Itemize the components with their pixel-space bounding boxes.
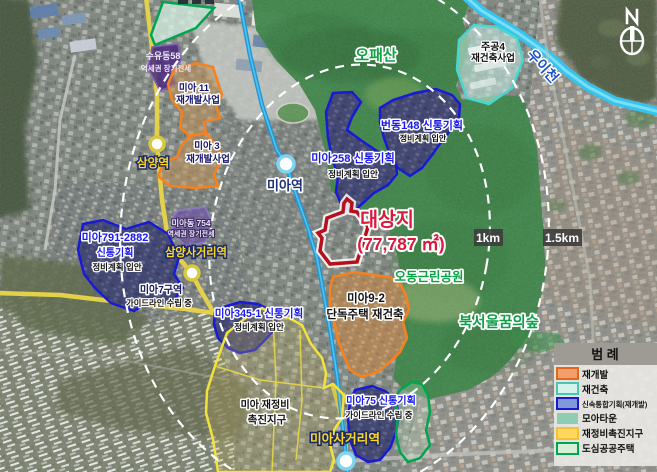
svg-text:재개발: 재개발 (582, 369, 608, 381)
svg-text:미아345-1 신통기획: 미아345-1 신통기획 (215, 307, 304, 320)
svg-text:모아타운: 모아타운 (582, 413, 617, 425)
svg-text:가이드라인 수립 중: 가이드라인 수립 중 (126, 298, 192, 308)
svg-text:재정비촉진지구: 재정비촉진지구 (582, 428, 643, 440)
svg-text:역세권 장기전세: 역세권 장기전세 (167, 229, 214, 238)
svg-text:가이드라인 수립 중: 가이드라인 수립 중 (345, 410, 412, 420)
svg-text:신통기획: 신통기획 (97, 246, 134, 259)
svg-text:미아동 754: 미아동 754 (171, 218, 210, 228)
svg-text:정비계획 입안: 정비계획 입안 (328, 168, 378, 179)
svg-text:단독주택 재건축: 단독주택 재건축 (326, 307, 404, 321)
svg-text:1.5km: 1.5km (545, 231, 579, 245)
svg-text:1km: 1km (476, 231, 500, 245)
svg-text:정비계획 입안: 정비계획 입안 (92, 262, 141, 272)
svg-text:미아791-2882: 미아791-2882 (82, 230, 149, 244)
svg-text:미아사거리역: 미아사거리역 (310, 431, 380, 446)
svg-text:미아7구역: 미아7구역 (140, 283, 182, 296)
svg-text:삼양사거리역: 삼양사거리역 (165, 245, 227, 259)
svg-text:재개발사업: 재개발사업 (176, 94, 220, 106)
svg-text:미아9-2: 미아9-2 (347, 291, 385, 305)
svg-text:미아258 신통기획: 미아258 신통기획 (311, 151, 395, 165)
svg-text:오패산: 오패산 (355, 47, 397, 64)
svg-text:정비계획 입안: 정비계획 입안 (400, 133, 447, 143)
svg-text:미아 11: 미아 11 (179, 82, 210, 94)
svg-text:주공4: 주공4 (481, 41, 505, 53)
svg-text:재개발사업: 재개발사업 (186, 153, 230, 165)
svg-text:재건축사업: 재건축사업 (471, 52, 515, 64)
svg-text:미아역: 미아역 (267, 178, 303, 193)
svg-text:(77,787 ㎡): (77,787 ㎡) (357, 234, 445, 254)
svg-text:미아 3: 미아 3 (194, 140, 219, 152)
svg-text:삼양역: 삼양역 (137, 156, 169, 170)
svg-text:범 례: 범 례 (591, 347, 619, 362)
svg-text:신속통합기획(재개발): 신속통합기획(재개발) (582, 400, 648, 409)
svg-text:도심공공주택: 도심공공주택 (582, 443, 634, 455)
svg-text:수유동58: 수유동58 (146, 51, 181, 61)
svg-text:오동근린공원: 오동근린공원 (394, 269, 463, 284)
svg-text:대상지: 대상지 (360, 209, 414, 231)
svg-text:촉진지구: 촉진지구 (248, 413, 287, 426)
svg-text:미아 재정비: 미아 재정비 (241, 398, 290, 411)
svg-text:정비계획 입안: 정비계획 입안 (234, 321, 284, 332)
svg-text:재건축: 재건축 (582, 384, 608, 396)
svg-text:역세권 장기전세: 역세권 장기전세 (141, 63, 191, 73)
svg-text:북서울꿈의숲: 북서울꿈의숲 (459, 313, 539, 331)
svg-text:미아75 신통기획: 미아75 신통기획 (346, 394, 416, 407)
svg-text:번동148 신통기획: 번동148 신통기획 (381, 118, 463, 132)
